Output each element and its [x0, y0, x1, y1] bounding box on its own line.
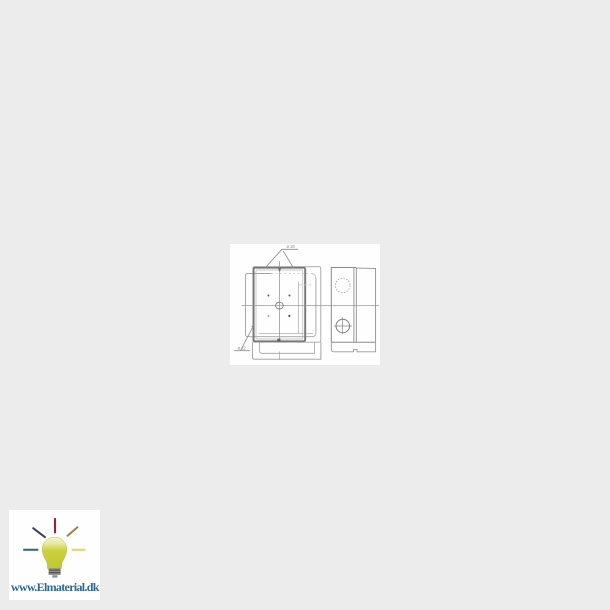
svg-text:ø 20: ø 20	[287, 244, 296, 249]
